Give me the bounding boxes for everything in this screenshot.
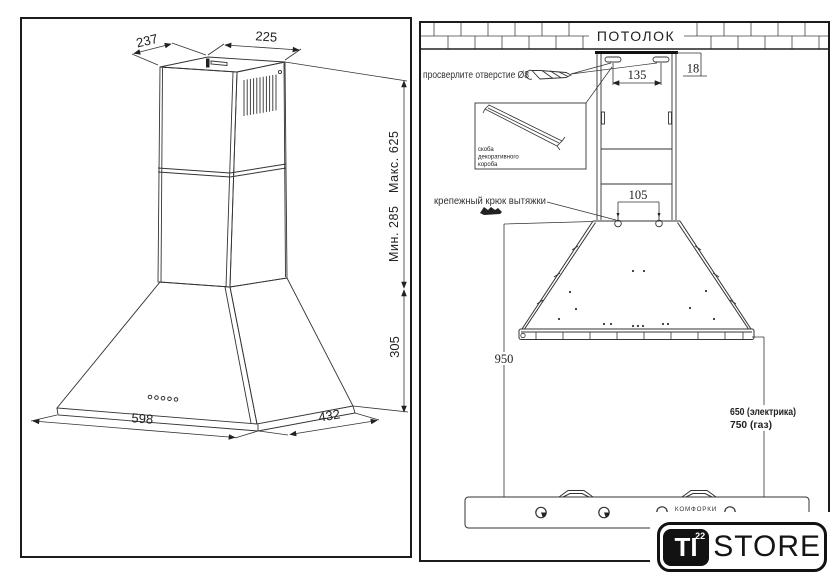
vent-grille (244, 75, 276, 117)
logo-badge-text: TI (675, 532, 698, 563)
canopy-rivets (558, 270, 715, 327)
dim-height-max: Макс. 625 (387, 131, 401, 193)
bracket-caption-line2: декоративного (478, 155, 519, 161)
top-latch-detail (206, 59, 210, 68)
dim-gas: 750 (газ) (730, 419, 772, 431)
drill-bit-icon (526, 70, 571, 79)
hood-body (57, 57, 355, 431)
tistore-logo: TI 22 STORE (650, 512, 834, 582)
hook-label: крепежный крюк вытяжки (434, 196, 546, 207)
dim-front-width: 598 (131, 410, 154, 427)
dimension-lines (31, 43, 408, 438)
logo-wordmark: STORE (713, 530, 821, 564)
dim-canopy-height: 305 (387, 336, 402, 358)
tistore-logo-frame: TI 22 STORE (657, 522, 827, 572)
dim-height-min: Мин. 285 (387, 206, 401, 262)
dim-top-depth: 237 (135, 31, 160, 50)
dim-105-lines (617, 202, 661, 218)
hook-leader-line (547, 202, 616, 220)
hook-icon (480, 207, 502, 215)
tistore-logo-badge: TI 22 (663, 529, 709, 566)
bracket-inset: скоба декоративного короба (475, 103, 586, 169)
logo-badge-sup: 22 (695, 531, 705, 541)
dim-side-depth: 432 (317, 406, 341, 424)
drawing-page: 237 225 Макс. 625 Мин. 285 305 598 432 (0, 0, 836, 583)
dim-electric: 650 (электрика) (730, 406, 796, 418)
bracket-caption-line1: скоба (478, 147, 494, 153)
installation-diagram-panel: ПОТОЛОК 135 18 про (419, 21, 830, 562)
dim-950-lines (504, 222, 593, 498)
bracket-caption-line3: короба (478, 162, 498, 168)
installation-drawing: ПОТОЛОК 135 18 про (421, 23, 828, 560)
mounting-hooks (615, 214, 663, 227)
control-buttons (148, 395, 178, 401)
dim-canopy-to-hob: 950 (495, 352, 514, 366)
drill-hole-label: просверлите отверстие Ø8 (423, 70, 529, 81)
dim-top-width: 225 (255, 28, 278, 44)
ceiling-label: ПОТОЛОК (597, 28, 675, 44)
dim-bracket-holes: 135 (628, 68, 647, 82)
dim-hooks: 105 (629, 188, 648, 202)
canopy-front-view (519, 221, 754, 340)
hood-isometric-drawing: 237 225 Макс. 625 Мин. 285 305 598 432 (22, 19, 410, 556)
screw-hole (278, 70, 281, 73)
hood-dimensions-panel: 237 225 Макс. 625 Мин. 285 305 598 432 (20, 17, 412, 558)
dim-ceiling-gap: 18 (687, 62, 700, 76)
